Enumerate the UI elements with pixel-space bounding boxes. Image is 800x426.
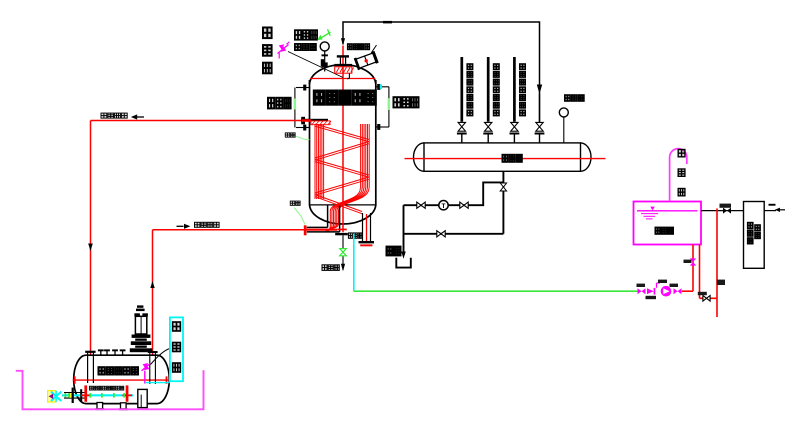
svg-text:T: T xyxy=(442,203,446,210)
